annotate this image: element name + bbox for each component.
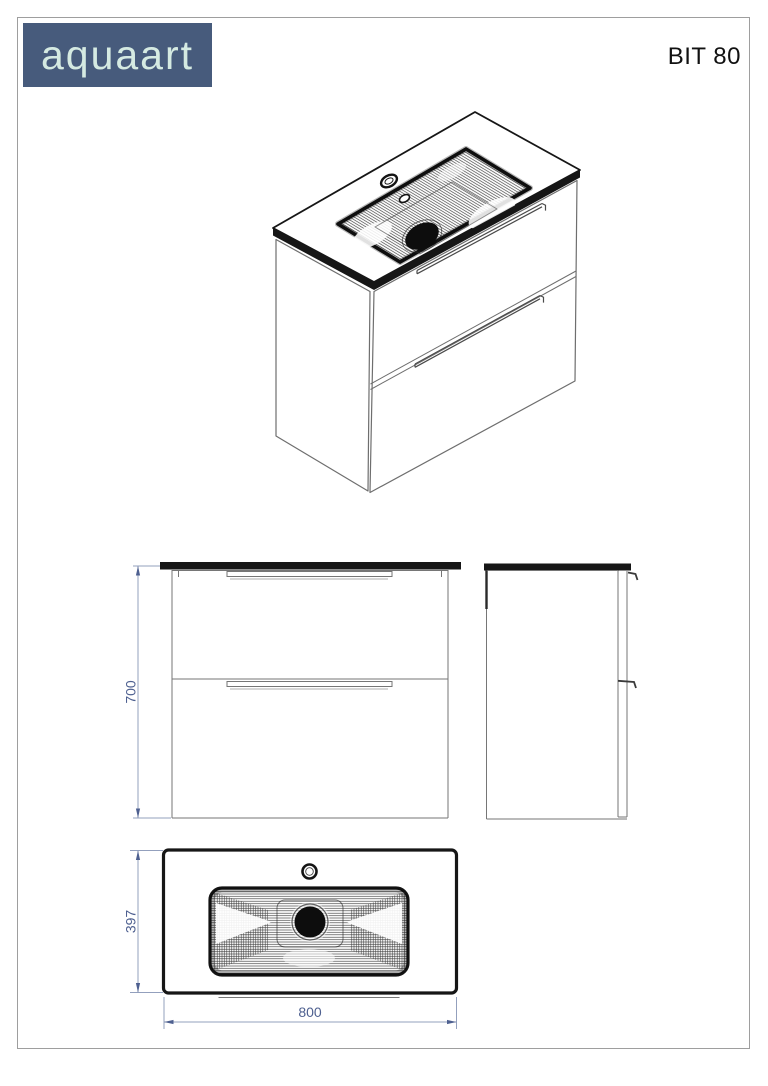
drawer-handle-bottom — [227, 682, 392, 687]
brand-logo: aquaart — [23, 23, 212, 87]
top-view: 397 800 — [115, 840, 480, 1040]
washbasin-top — [210, 888, 408, 975]
countertop-profile — [484, 564, 631, 571]
front-view: 700 — [120, 550, 480, 835]
faucet-hole — [303, 865, 317, 879]
countertop-profile — [160, 562, 461, 570]
brand-logo-text: aquaart — [41, 35, 194, 76]
model-title: BIT 80 — [668, 43, 741, 71]
drawer-handles-side — [618, 573, 638, 689]
drain — [295, 907, 326, 938]
dimension-width: 800 — [164, 997, 457, 1029]
dimension-width-label: 800 — [298, 1004, 322, 1020]
dimension-height-label: 700 — [123, 680, 139, 704]
drawer-handles — [227, 572, 392, 690]
cabinet-front — [172, 570, 448, 818]
dimension-depth: 397 — [123, 851, 164, 993]
side-view — [470, 550, 655, 835]
isometric-view — [255, 105, 600, 505]
cabinet-side — [487, 571, 628, 820]
drawing-page: { "brand": { "name": "aquaart" }, "sheet… — [0, 0, 768, 1086]
dimension-height: 700 — [123, 566, 172, 818]
dimension-depth-label: 397 — [123, 910, 139, 934]
drawer-handle-top — [227, 572, 392, 577]
drawer-handle-top — [628, 573, 638, 581]
